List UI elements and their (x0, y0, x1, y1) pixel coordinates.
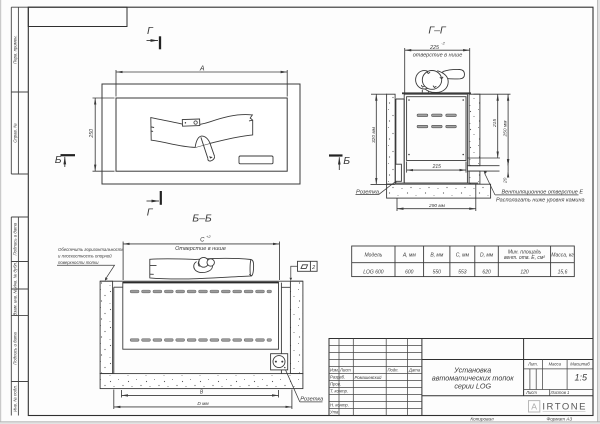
svg-text:серии LOG: серии LOG (454, 381, 491, 390)
svg-text:Подпись и дата: Подпись и дата (13, 222, 18, 255)
svg-text:215: 215 (492, 119, 498, 128)
svg-text:Инв. № дубл.: Инв. № дубл. (13, 262, 18, 288)
svg-text:600: 600 (405, 270, 414, 276)
svg-text:С, мм: С, мм (456, 252, 470, 258)
svg-text:20: 20 (503, 177, 509, 184)
svg-text:Модель: Модель (365, 253, 383, 259)
svg-text:IRTONE: IRTONE (542, 402, 587, 413)
svg-text:Подпись и дата: Подпись и дата (13, 332, 18, 365)
svg-text:Б–Б: Б–Б (192, 213, 212, 225)
svg-text:15,6: 15,6 (558, 270, 568, 276)
svg-text:С: С (200, 238, 205, 244)
svg-text:Отверстие в нише: Отверстие в нише (175, 246, 226, 252)
svg-text:553: 553 (458, 270, 467, 276)
svg-text:поверхности топки: поверхности топки (58, 260, 99, 265)
svg-text:120: 120 (520, 270, 529, 276)
svg-text:550: 550 (433, 270, 442, 276)
svg-text:Г–Г: Г–Г (428, 25, 447, 37)
svg-text:A: A (531, 402, 537, 412)
svg-text:А: А (199, 65, 205, 72)
svg-text:Лист: Лист (525, 390, 537, 395)
svg-text:LOG 600: LOG 600 (363, 270, 384, 276)
svg-text:Н. контр.: Н. контр. (330, 403, 349, 408)
svg-text:2: 2 (311, 265, 315, 271)
svg-text:Обеспечить горизонтальность: Обеспечить горизонтальность (58, 247, 124, 252)
svg-text:Взам. инв. №: Взам. инв. № (13, 289, 18, 316)
svg-text:Перв. примен.: Перв. примен. (13, 35, 18, 64)
svg-text:250 мм: 250 мм (503, 120, 509, 138)
svg-text:Дата: Дата (408, 368, 421, 373)
svg-text:620: 620 (482, 270, 491, 276)
svg-text:Масштаб: Масштаб (570, 362, 590, 367)
svg-text:D мм: D мм (197, 401, 209, 407)
svg-text:215: 215 (432, 164, 442, 170)
svg-text:Лист: Лист (339, 368, 351, 373)
svg-text:Располагать ниже уровня камина: Располагать ниже уровня камина (496, 198, 585, 204)
svg-text:Инв. № подл.: Инв. № подл. (13, 385, 18, 412)
svg-text:1:5: 1:5 (574, 372, 588, 382)
svg-text:Листов 1: Листов 1 (550, 390, 570, 395)
svg-text:Разраб.: Разраб. (330, 375, 345, 380)
svg-text:290 мм: 290 мм (428, 203, 446, 209)
svg-text:А, мм: А, мм (402, 252, 417, 258)
svg-text:В, мм: В, мм (430, 252, 444, 258)
svg-text:D, мм: D, мм (480, 252, 494, 258)
svg-text:Утв.: Утв. (330, 410, 340, 415)
svg-text:Справ. №: Справ. № (13, 123, 18, 143)
svg-text:и плоскостность опорной: и плоскостность опорной (58, 253, 112, 258)
svg-text:Б: Б (343, 155, 350, 167)
svg-text:Лит.: Лит. (527, 362, 538, 367)
svg-text:+2: +2 (206, 234, 211, 239)
svg-text:Формат А3: Формат А3 (546, 416, 572, 421)
svg-text:Масса, кг: Масса, кг (551, 252, 574, 258)
svg-text:Т. контр.: Т. контр. (330, 389, 348, 394)
svg-text:Ромашевский: Ромашевский (355, 375, 383, 380)
svg-text:Изм.: Изм. (330, 368, 339, 373)
svg-text:Пров.: Пров. (330, 382, 341, 387)
svg-text:250: 250 (89, 129, 95, 139)
svg-text:Подп.: Подп. (388, 368, 399, 373)
svg-text:Копировал: Копировал (470, 416, 494, 421)
svg-text:320 мм: 320 мм (371, 126, 377, 143)
svg-text:вент. отв. Е, см²: вент. отв. Е, см² (504, 255, 545, 261)
svg-text:Масса: Масса (549, 362, 562, 367)
svg-text:отверстие в нише: отверстие в нише (413, 52, 463, 58)
